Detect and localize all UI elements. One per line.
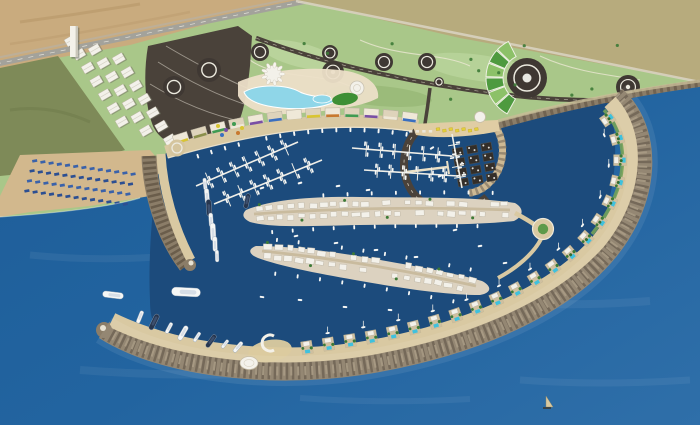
detail	[362, 256, 369, 262]
detail	[367, 330, 374, 335]
island-villa	[284, 255, 292, 261]
boat	[392, 168, 394, 173]
detail	[388, 164, 390, 169]
boat	[388, 164, 390, 169]
boat	[445, 171, 447, 176]
island-villa	[341, 211, 348, 216]
detail	[298, 299, 303, 301]
boat	[405, 169, 407, 174]
island-villa	[328, 262, 335, 267]
detail	[414, 256, 419, 258]
detail	[353, 225, 355, 229]
plaza-circle	[251, 43, 269, 61]
boat	[322, 193, 324, 197]
promenade-building	[344, 108, 359, 117]
boat	[374, 224, 376, 228]
yacht	[212, 236, 217, 251]
detail	[341, 211, 348, 216]
island-villa	[375, 211, 381, 217]
detail	[322, 193, 324, 197]
island-villa	[339, 264, 347, 270]
detail	[180, 289, 197, 294]
island-villa	[320, 214, 327, 219]
cove-dome	[475, 112, 486, 123]
boat	[445, 178, 447, 183]
boat	[371, 191, 373, 195]
detail	[298, 202, 304, 208]
detail	[330, 212, 336, 217]
plaza-circle	[375, 53, 393, 71]
island-villa	[305, 257, 314, 264]
boat	[394, 224, 396, 228]
yacht	[171, 287, 200, 297]
detail	[468, 190, 470, 194]
marina-aerial-render	[0, 0, 700, 425]
floating-platform	[486, 173, 498, 182]
detail	[363, 128, 365, 133]
island-villa	[320, 202, 328, 207]
umbrella	[236, 131, 240, 135]
boat	[432, 170, 434, 175]
breakwater-villa	[322, 337, 335, 352]
boat	[349, 128, 351, 133]
detail	[163, 76, 185, 98]
detail	[383, 210, 391, 215]
tree	[326, 52, 329, 55]
detail	[287, 245, 293, 251]
promenade-building	[325, 108, 340, 117]
detail	[403, 275, 410, 280]
detail	[445, 171, 447, 176]
detail	[310, 203, 318, 208]
tree	[619, 154, 622, 157]
island-villa	[352, 201, 359, 207]
island-villa	[298, 202, 304, 208]
yacht	[215, 250, 219, 262]
detail	[287, 215, 294, 220]
detail	[277, 214, 283, 219]
detail	[437, 211, 444, 216]
detail	[414, 277, 421, 283]
promenade-building	[286, 109, 302, 119]
tree	[469, 58, 472, 61]
island-villa	[425, 201, 433, 206]
tree	[386, 216, 389, 219]
umbrella	[220, 133, 224, 137]
tree	[523, 44, 526, 47]
boat	[312, 227, 314, 231]
island-villa	[309, 214, 316, 219]
tree	[570, 93, 573, 96]
detail	[378, 167, 380, 172]
detail	[333, 226, 335, 230]
tree	[437, 268, 440, 271]
island-villa	[414, 277, 421, 283]
marina-render-svg	[0, 0, 700, 425]
detail	[339, 264, 347, 270]
island-villa	[277, 214, 283, 219]
detail	[321, 128, 323, 133]
detail	[309, 214, 316, 219]
boat	[401, 172, 403, 177]
detail	[415, 266, 423, 273]
detail	[415, 200, 422, 204]
island-villa	[339, 201, 348, 208]
island-villa	[446, 201, 455, 206]
detail	[375, 211, 381, 217]
boat	[388, 171, 390, 176]
island-villa	[268, 216, 274, 221]
detail	[307, 248, 315, 254]
detail	[263, 244, 272, 250]
boat	[375, 163, 377, 168]
roundabout	[197, 58, 221, 82]
pavilion-petal	[279, 72, 285, 75]
detail	[425, 201, 433, 206]
boat	[321, 128, 323, 133]
detail	[405, 169, 407, 174]
plaza-circle	[322, 45, 338, 61]
detail	[371, 191, 373, 195]
detail	[216, 253, 218, 260]
boat	[432, 177, 434, 182]
boat	[271, 230, 273, 234]
detail	[382, 200, 391, 205]
detail	[214, 241, 217, 250]
detail	[392, 168, 394, 173]
detail	[502, 212, 509, 217]
umbrella	[232, 122, 236, 126]
island-villa	[361, 212, 370, 218]
detail	[394, 212, 400, 217]
detail	[339, 201, 348, 208]
detail	[428, 173, 430, 178]
detail	[424, 278, 432, 285]
beach-umbrella	[455, 129, 459, 132]
detail	[264, 253, 271, 259]
island-villa	[470, 210, 476, 216]
detail	[458, 211, 466, 215]
tree	[343, 199, 346, 202]
detail	[275, 244, 283, 250]
island-villa	[350, 255, 357, 260]
detail	[359, 267, 366, 272]
boat	[415, 166, 417, 171]
awning	[345, 114, 358, 117]
boat	[405, 175, 407, 180]
promenade-building	[364, 108, 380, 118]
umbrella	[240, 126, 244, 130]
detail	[298, 213, 305, 217]
beach-umbrella	[468, 129, 472, 132]
island-villa	[330, 212, 336, 217]
beach-umbrella	[416, 130, 419, 133]
detail	[622, 158, 625, 163]
detail	[477, 224, 479, 228]
island-villa	[351, 212, 360, 217]
island-villa	[317, 251, 327, 257]
island-villa	[307, 248, 315, 254]
tree	[620, 159, 623, 162]
tree	[309, 264, 312, 267]
island-villa	[415, 266, 423, 273]
island-villa	[437, 211, 444, 216]
boat	[375, 170, 377, 175]
boat	[415, 224, 417, 228]
boat	[435, 224, 437, 228]
detail	[361, 212, 370, 218]
boat	[492, 191, 494, 195]
promenade-building	[383, 110, 399, 121]
floating-platform	[481, 142, 493, 151]
promenade-building	[402, 112, 418, 123]
detail	[329, 252, 335, 258]
breakwater-villa	[300, 340, 313, 355]
detail	[432, 177, 434, 182]
island-villa	[458, 274, 464, 279]
island-villa	[298, 247, 305, 253]
island-villa	[443, 282, 452, 288]
floating-platform	[484, 162, 496, 171]
tree	[428, 198, 431, 201]
island-villa	[362, 256, 369, 262]
detail	[277, 205, 284, 210]
island-villa	[371, 257, 380, 263]
tree	[300, 219, 303, 222]
island-villa	[287, 245, 293, 251]
island-villa	[500, 201, 507, 205]
detail	[405, 262, 412, 269]
boat	[456, 224, 458, 228]
island-villa	[287, 203, 294, 208]
tree	[471, 216, 474, 219]
tree	[497, 71, 500, 74]
detail	[292, 228, 294, 232]
tree	[303, 42, 306, 45]
detail	[442, 168, 444, 173]
detail	[346, 334, 353, 339]
detail	[458, 274, 464, 279]
detail	[388, 171, 390, 176]
island-villa	[447, 211, 456, 218]
island-villa	[490, 202, 499, 207]
detail	[324, 338, 331, 343]
detail	[435, 224, 437, 228]
island-villa	[265, 205, 273, 211]
detail	[349, 128, 351, 133]
detail	[470, 210, 476, 216]
boat	[333, 226, 335, 230]
detail	[312, 227, 314, 231]
boat	[335, 128, 337, 133]
promenade-building	[306, 108, 321, 118]
tree	[391, 42, 394, 45]
boat	[428, 173, 430, 178]
detail	[415, 224, 417, 228]
umbrella	[224, 128, 228, 132]
detail	[265, 205, 273, 211]
detail	[350, 255, 357, 260]
breakwater-villa	[613, 154, 626, 165]
detail	[274, 255, 282, 261]
round-pavilion	[350, 81, 364, 95]
island-villa	[361, 202, 369, 207]
island-villa	[502, 212, 509, 217]
island-villa	[277, 205, 284, 210]
helipad-circle	[507, 58, 547, 98]
detail	[303, 341, 310, 346]
plaza-circle	[418, 53, 436, 71]
detail	[432, 170, 434, 175]
detail	[614, 157, 618, 163]
detail	[287, 203, 294, 208]
detail	[415, 210, 424, 216]
promenade-building	[267, 111, 283, 122]
island-villa	[359, 267, 366, 272]
quay-roundabout	[169, 140, 186, 157]
tree	[616, 44, 619, 47]
beach-umbrella	[462, 127, 466, 130]
detail	[271, 230, 273, 234]
detail	[375, 53, 393, 71]
detail	[374, 224, 376, 228]
tree	[514, 83, 517, 86]
detail	[371, 257, 380, 263]
island-villa	[256, 206, 263, 211]
boat	[442, 168, 444, 173]
detail	[317, 251, 327, 257]
floating-platform	[470, 165, 482, 174]
detail	[375, 170, 377, 175]
breakwater-villa	[343, 333, 356, 348]
tree	[590, 87, 593, 90]
island-villa	[275, 244, 283, 250]
detail	[322, 45, 338, 61]
island-villa	[264, 253, 271, 259]
boat	[298, 299, 303, 301]
detail	[492, 191, 494, 195]
island-villa	[298, 213, 305, 217]
beach-umbrella	[442, 129, 446, 132]
island-villa	[458, 211, 466, 215]
beach-umbrella	[409, 130, 412, 133]
boat	[353, 225, 355, 229]
floating-platform	[482, 152, 494, 161]
detail	[335, 128, 337, 133]
detail	[456, 224, 458, 228]
boat	[363, 128, 365, 133]
umbrella	[216, 124, 220, 128]
island-villa	[274, 255, 282, 261]
detail	[347, 192, 349, 196]
island-villa	[415, 210, 424, 216]
detail	[328, 262, 335, 267]
boat	[477, 224, 479, 228]
boat	[343, 306, 348, 308]
boat	[419, 190, 421, 194]
detail	[395, 191, 397, 195]
island-villa	[256, 215, 264, 221]
floating-platform	[457, 178, 469, 187]
detail	[415, 166, 417, 171]
island-villa	[287, 215, 294, 220]
hillside-tower	[70, 26, 79, 59]
island-villa	[310, 203, 318, 208]
detail	[284, 255, 292, 261]
detail	[405, 200, 411, 204]
detail	[418, 53, 436, 71]
tree	[619, 163, 622, 166]
detail	[305, 257, 314, 264]
tree	[477, 69, 480, 72]
island-villa	[459, 201, 468, 207]
beach-umbrella	[422, 130, 425, 133]
detail	[256, 215, 264, 221]
island-villa	[403, 275, 410, 280]
detail	[500, 201, 507, 205]
island-villa	[405, 262, 412, 269]
floating-platform	[472, 175, 484, 184]
beach-umbrella	[474, 127, 478, 130]
detail	[490, 202, 499, 207]
detail	[405, 175, 407, 180]
island-villa	[479, 212, 485, 217]
tree	[352, 252, 355, 255]
floating-platform	[468, 155, 480, 164]
detail	[375, 163, 377, 168]
detail	[394, 224, 396, 228]
beach-umbrella	[449, 127, 453, 130]
boat	[414, 256, 419, 258]
boat	[443, 190, 445, 194]
beach-umbrella	[436, 127, 440, 130]
island-villa	[415, 200, 422, 204]
detail	[197, 58, 221, 82]
boat	[377, 129, 379, 134]
boat	[347, 192, 349, 196]
west-pier-head	[189, 261, 194, 266]
detail	[479, 212, 485, 217]
island-villa	[405, 200, 411, 204]
detail	[352, 201, 359, 207]
detail	[320, 202, 328, 207]
boat	[292, 228, 294, 232]
island-villa	[329, 252, 335, 258]
detail	[445, 178, 447, 183]
detail	[361, 202, 369, 207]
detail	[459, 201, 468, 207]
beach-umbrella	[429, 130, 432, 133]
detail	[298, 247, 305, 253]
island-villa	[394, 212, 400, 217]
tree	[395, 277, 398, 280]
island-villa	[382, 200, 391, 205]
island-villa	[330, 201, 336, 206]
boat	[468, 190, 470, 194]
detail	[419, 190, 421, 194]
plaza-circle	[434, 77, 444, 87]
awning	[326, 114, 339, 117]
island-villa	[383, 210, 391, 215]
detail	[402, 165, 404, 170]
detail	[401, 172, 403, 177]
boat	[402, 165, 404, 170]
detail	[251, 43, 269, 61]
detail	[256, 206, 263, 211]
detail	[330, 201, 336, 206]
detail	[447, 211, 456, 218]
roundabout	[163, 76, 185, 98]
